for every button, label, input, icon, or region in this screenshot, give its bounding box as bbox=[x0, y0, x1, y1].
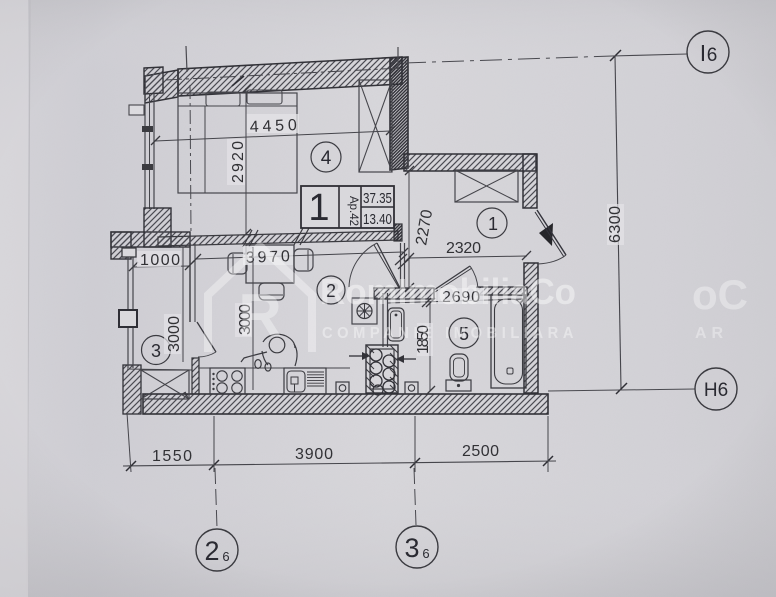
svg-text:Ap.42: Ap.42 bbox=[347, 196, 359, 226]
svg-text:1550: 1550 bbox=[152, 448, 192, 465]
svg-text:3: 3 bbox=[151, 341, 161, 361]
svg-text:2320: 2320 bbox=[446, 240, 481, 257]
svg-text:1: 1 bbox=[488, 214, 498, 234]
svg-text:6: 6 bbox=[707, 45, 718, 66]
svg-text:1: 1 bbox=[308, 187, 329, 229]
svg-text:6300: 6300 bbox=[607, 206, 624, 243]
svg-text:RomImobiliaCo: RomImobiliaCo bbox=[320, 271, 576, 312]
svg-text:I: I bbox=[700, 40, 706, 66]
svg-text:AR: AR bbox=[695, 325, 728, 342]
svg-text:1000: 1000 bbox=[140, 252, 180, 269]
svg-text:H6: H6 bbox=[704, 380, 728, 401]
svg-text:6: 6 bbox=[222, 549, 229, 564]
svg-text:3000: 3000 bbox=[166, 316, 183, 352]
svg-text:oC: oC bbox=[692, 271, 748, 318]
svg-text:4: 4 bbox=[321, 148, 332, 169]
svg-text:13.40: 13.40 bbox=[363, 212, 392, 228]
svg-text:2500: 2500 bbox=[462, 443, 499, 460]
svg-text:COMPANIE IMOBILIARA: COMPANIE IMOBILIARA bbox=[322, 325, 578, 342]
svg-text:2: 2 bbox=[204, 536, 219, 566]
svg-text:37.35: 37.35 bbox=[363, 191, 392, 207]
svg-text:3900: 3900 bbox=[295, 446, 333, 463]
svg-text:3: 3 bbox=[404, 533, 419, 563]
svg-text:6: 6 bbox=[422, 546, 429, 561]
svg-text:R: R bbox=[238, 282, 281, 349]
